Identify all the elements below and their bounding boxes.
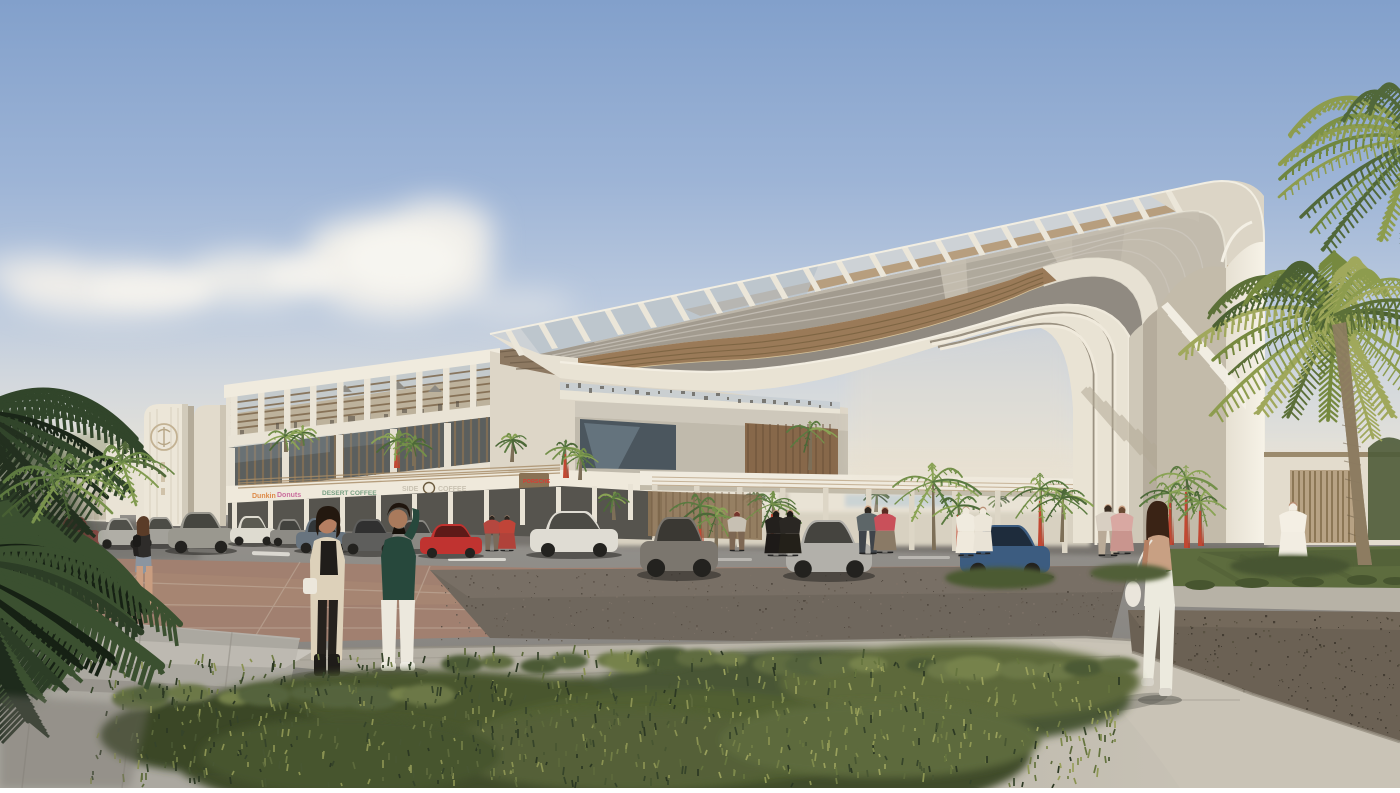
svg-text:PORSCHE: PORSCHE (523, 479, 551, 485)
svg-text:Donuts: Donuts (277, 492, 301, 499)
svg-text:Dunkin: Dunkin (252, 493, 276, 500)
svg-text:SIDE: SIDE (402, 486, 419, 493)
